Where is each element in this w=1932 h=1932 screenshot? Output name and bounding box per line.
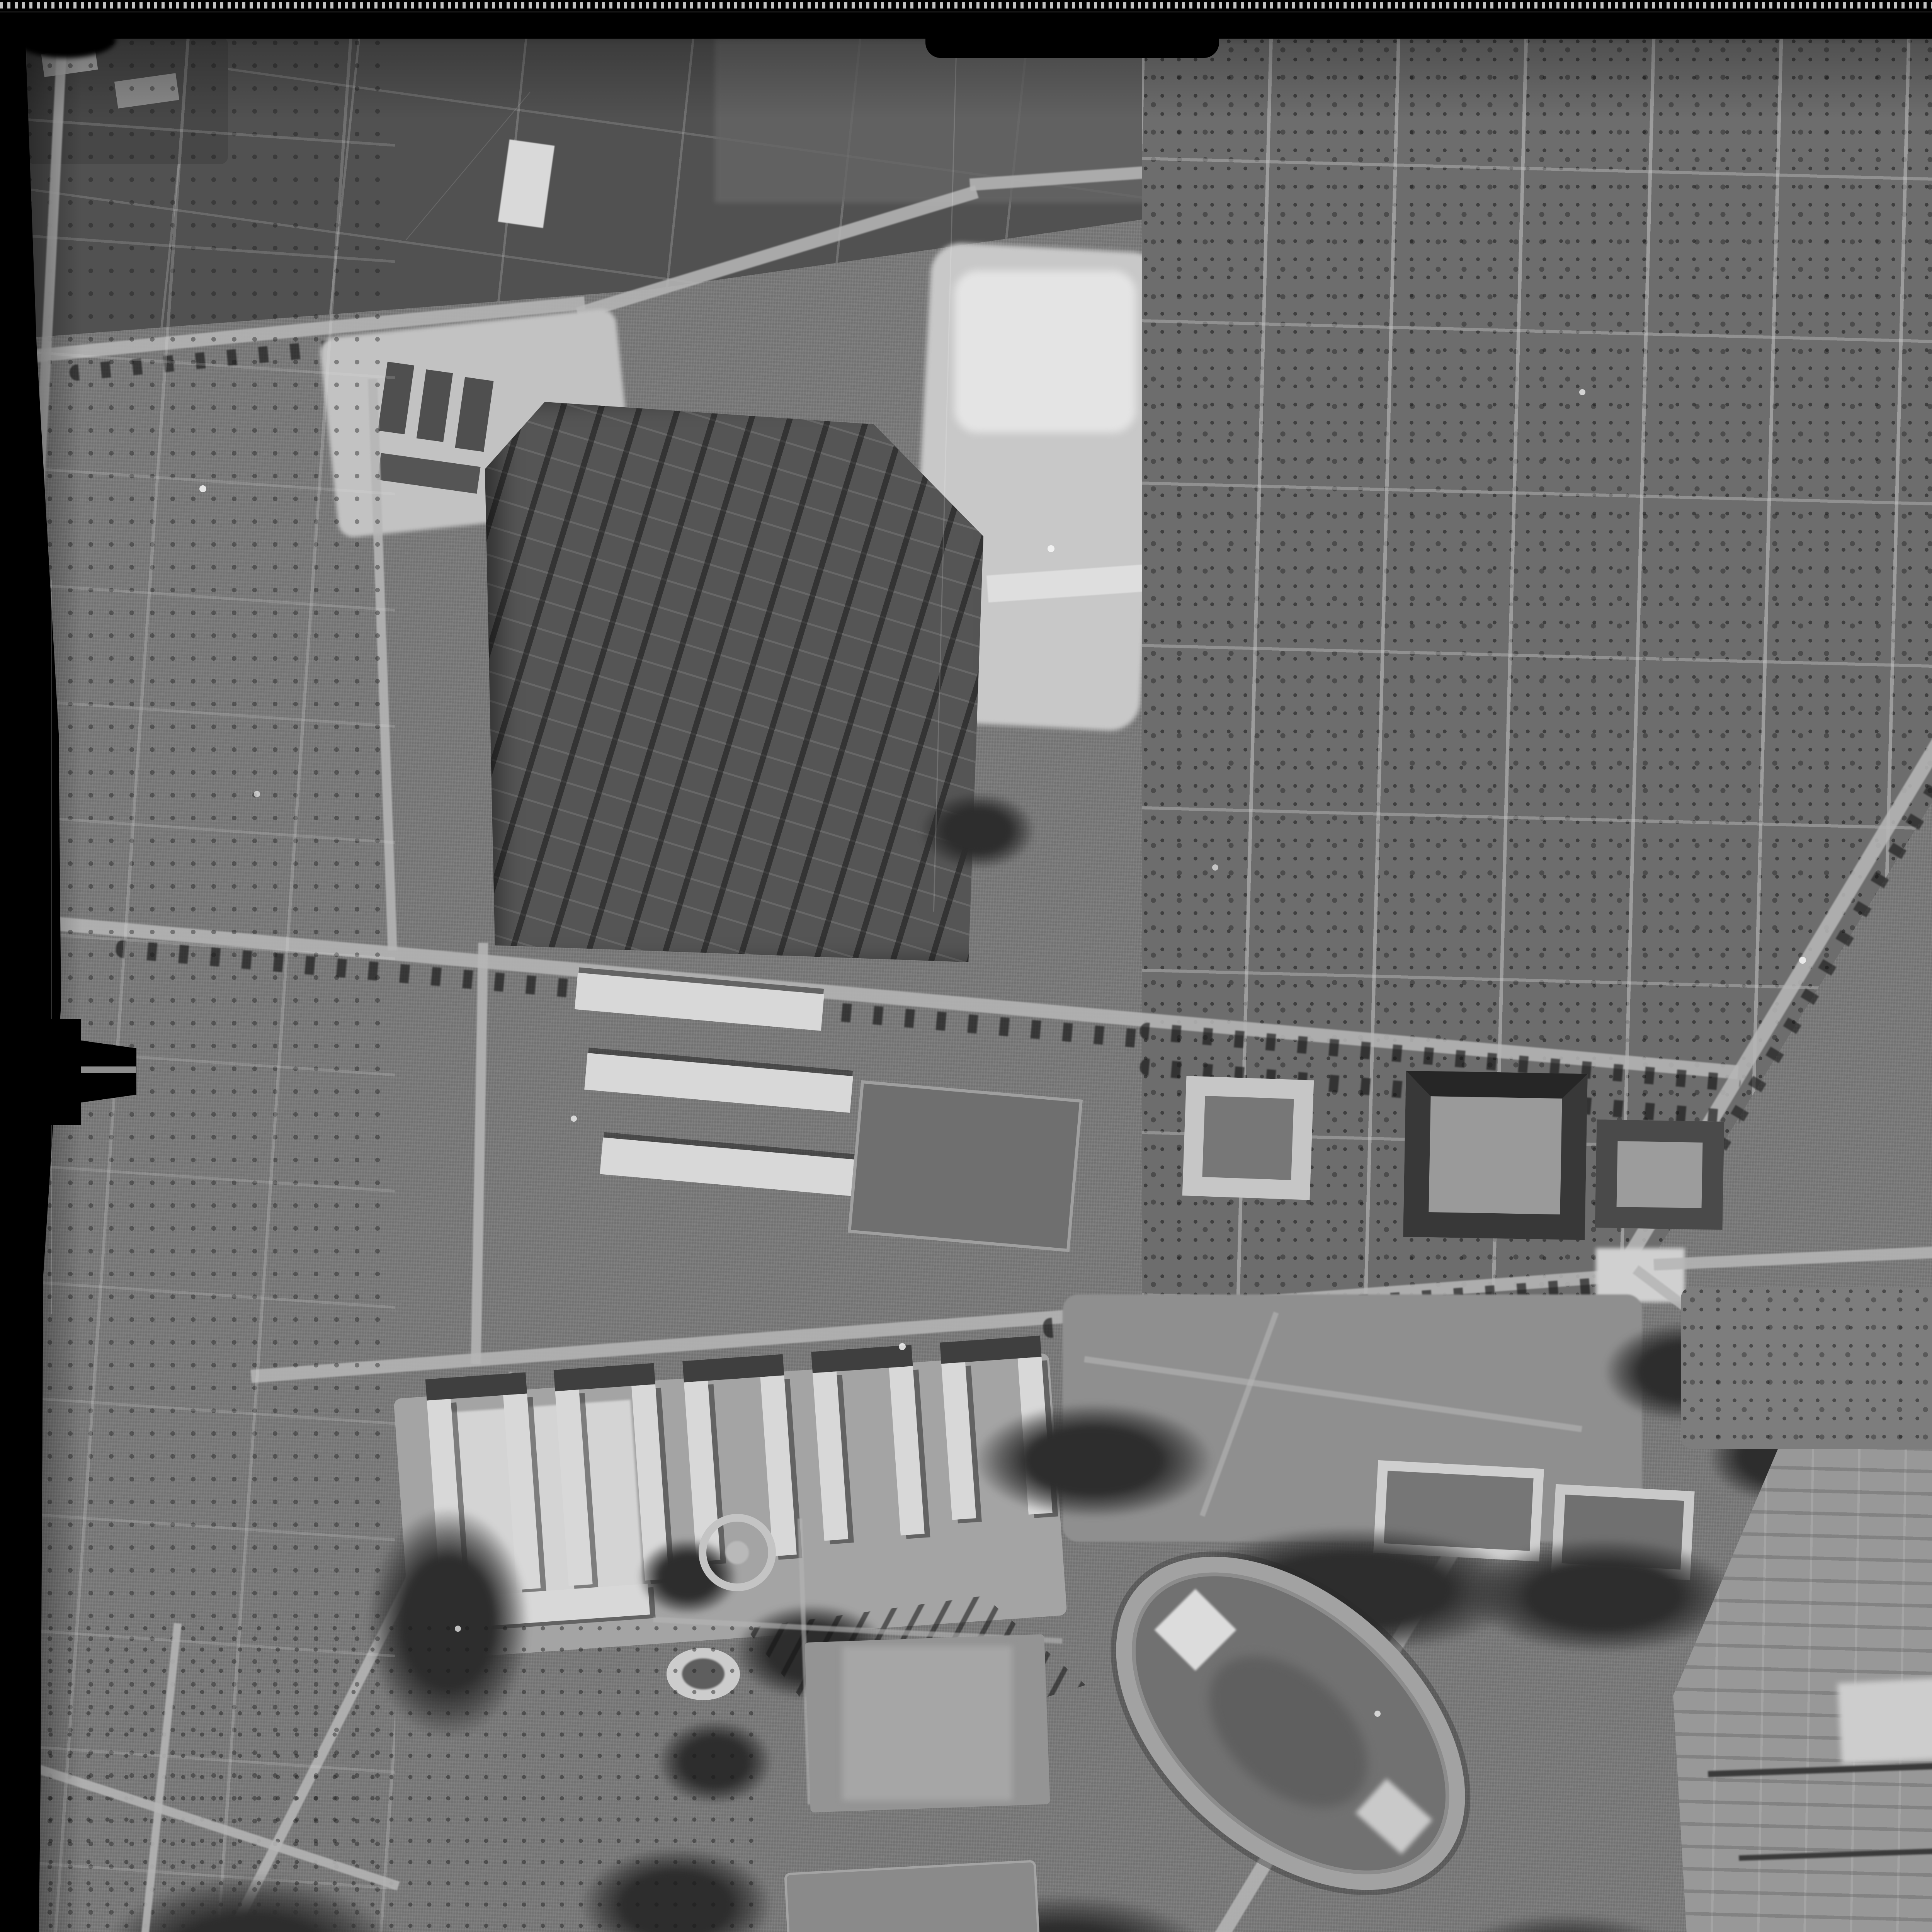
fiducial-left-icon	[36, 1019, 81, 1125]
frame-top-tab	[925, 0, 1219, 58]
film-edge-line	[0, 12, 1932, 12]
fiducial-left-slit	[81, 1066, 136, 1073]
photo-content	[24, 11, 1932, 1932]
border-scratch-line	[51, 580, 52, 1314]
frame-top-corner-blob	[15, 21, 116, 58]
vignette	[24, 11, 1932, 1932]
screenshot-root: 7413 KODAK AEROGRAP KODAK AEROGRAPHIC SA…	[0, 0, 1932, 1932]
aerial-photo[interactable]	[24, 11, 1932, 1932]
perforation-tick-strip	[0, 2, 1932, 9]
